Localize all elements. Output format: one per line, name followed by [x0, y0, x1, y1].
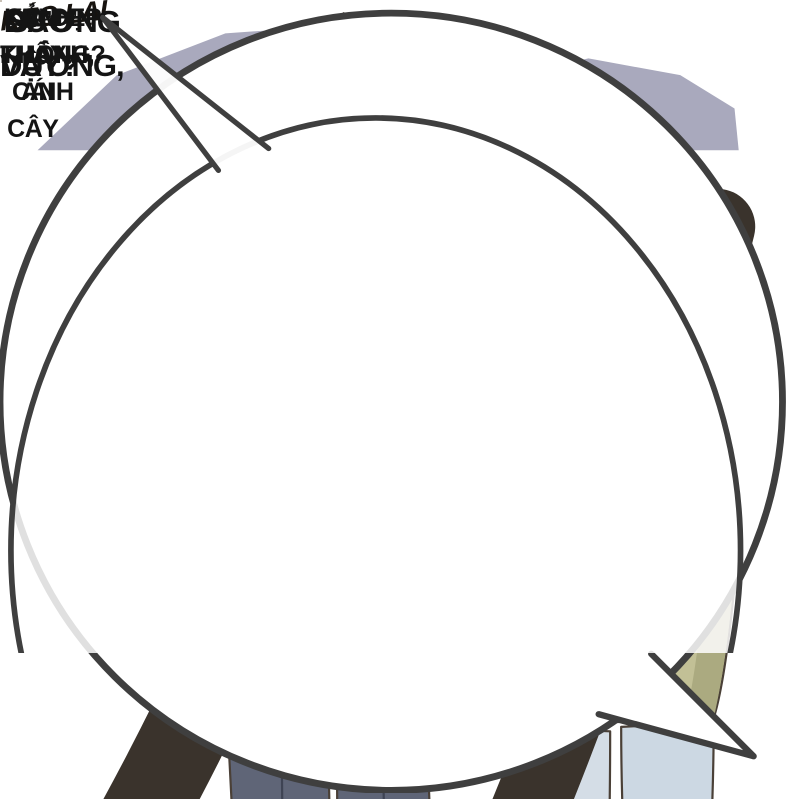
speech-line: KIA ĐẸP KHÔNG?	[0, 0, 105, 74]
comic-page: KÉO LẠI DƯƠNG DƯƠNG, SAO VẬY? ANH KHÁNH,…	[0, 0, 793, 799]
speech-bubble-bottom-right	[0, 0, 793, 653]
